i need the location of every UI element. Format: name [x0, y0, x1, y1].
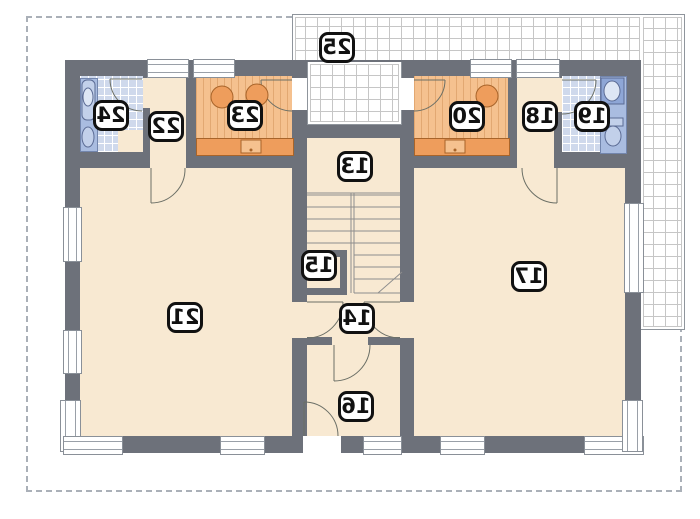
room-label-25: 25 — [319, 32, 355, 63]
room-label-21: 21 — [167, 302, 203, 333]
room-label-14: 14 — [339, 303, 375, 334]
terrace-loggia-tiles — [307, 62, 402, 125]
door-opening-14-16 — [332, 337, 368, 345]
room-label-23: 23 — [227, 100, 263, 131]
room-label-15: 15 — [301, 250, 337, 281]
room-label-22: 22 — [148, 111, 184, 142]
window — [440, 436, 485, 455]
room-22-floor-notch — [118, 130, 143, 152]
door-threshold-20-terrace — [400, 78, 414, 110]
entry-door-threshold — [303, 436, 341, 453]
window — [193, 59, 235, 78]
window — [63, 207, 82, 262]
room-label-13: 13 — [337, 151, 373, 182]
window — [63, 330, 82, 374]
window — [516, 59, 560, 78]
window — [220, 436, 265, 455]
floor-plan: 24 22 23 25 20 18 19 13 15 14 21 17 16 — [0, 0, 700, 519]
window — [470, 59, 512, 78]
room-label-19: 19 — [574, 101, 610, 132]
room-17-living-floor — [414, 168, 625, 436]
room-label-20: 20 — [449, 101, 485, 132]
door-opening-14-21 — [292, 302, 307, 338]
room-label-24: 24 — [93, 100, 129, 131]
door-threshold-23-terrace — [292, 78, 307, 110]
room-label-16: 16 — [338, 391, 374, 422]
window — [363, 436, 402, 455]
closet-15-wall-bottom — [307, 288, 347, 295]
terrace-tiles-right — [641, 14, 685, 330]
room-20-counter — [414, 138, 510, 156]
corner-window — [63, 436, 123, 455]
corner-window — [622, 400, 643, 452]
door-opening-14-17 — [400, 302, 414, 338]
door-opening-22-24 — [143, 78, 150, 108]
room-label-18: 18 — [522, 101, 558, 132]
window — [624, 203, 644, 293]
room-23-counter — [196, 138, 294, 156]
window — [147, 59, 189, 78]
room-label-17: 17 — [511, 261, 547, 292]
